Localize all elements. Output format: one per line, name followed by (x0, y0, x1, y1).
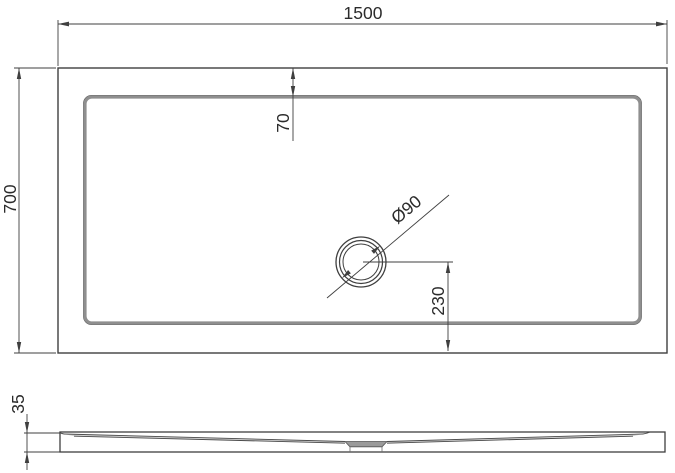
drawing-sheet: 1500 700 70 Ø90 (0, 0, 675, 473)
dim-length-1500: 1500 (58, 3, 667, 66)
dim-arrow-bottom (25, 452, 29, 463)
tray-outer-edge (58, 68, 667, 353)
dim-width-700: 700 (0, 68, 56, 353)
dim-arrow-bottom (17, 342, 21, 353)
dim-arrow-left (58, 22, 69, 27)
dim-arrow-right (656, 22, 667, 27)
side-profile-view (60, 432, 665, 452)
plan-view (58, 68, 667, 353)
dim-label-length: 1500 (344, 3, 383, 23)
dim-arrow-top (17, 68, 21, 79)
drain-pocket (345, 442, 387, 447)
dim-label-thickness: 35 (8, 394, 28, 413)
dim-label-drain-offset: 230 (428, 286, 448, 315)
dim-label-rim-offset: 70 (273, 113, 293, 133)
dim-arrow-top (25, 422, 29, 433)
dim-label-width: 700 (0, 184, 20, 213)
dim-thickness-35: 35 (8, 394, 60, 470)
shower-tray-technical-drawing: 1500 700 70 Ø90 (0, 0, 675, 473)
